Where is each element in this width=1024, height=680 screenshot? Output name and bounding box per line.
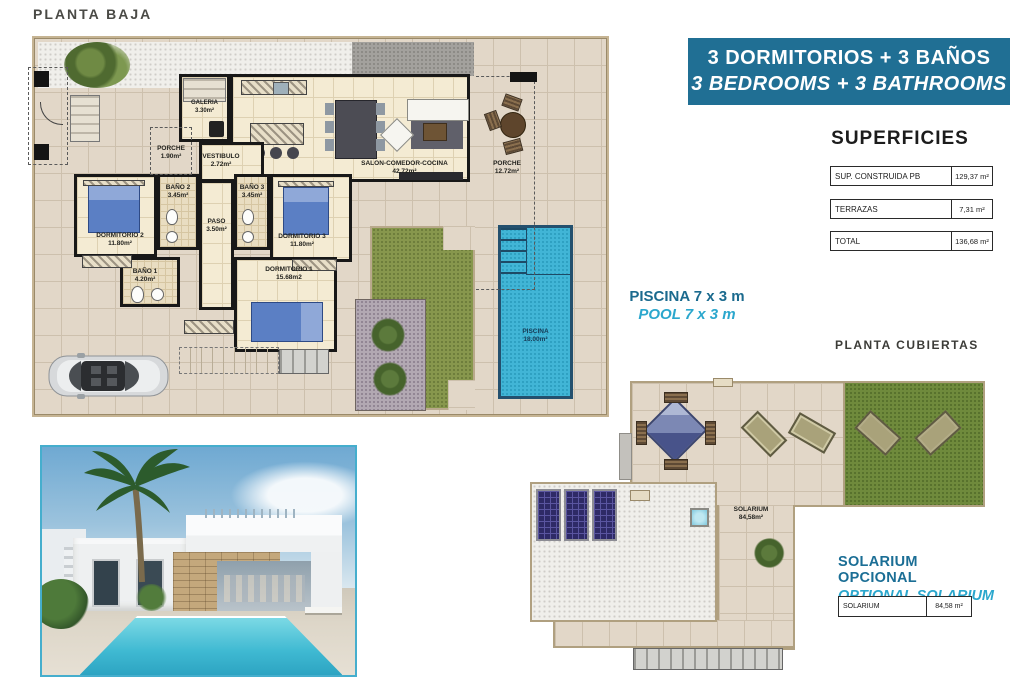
sink-icon [151, 288, 164, 301]
banner-line2: 3 BEDROOMS + 3 BATHROOMS [688, 73, 1010, 96]
superficies-row-value: 136,68 m² [951, 232, 992, 250]
chair-icon [376, 103, 385, 115]
room-label-bano2: BAÑO 23.45m² [154, 184, 202, 200]
skylight-glass [692, 510, 707, 525]
superficies-row-label: TERRAZAS [831, 205, 951, 214]
superficies-row: TERRAZAS 7,31 m² [830, 199, 993, 219]
room-label-vestibulo: VESTIBULO2.72m² [192, 153, 250, 169]
bed-icon [283, 187, 329, 235]
palm-icon [366, 318, 410, 352]
washer-icon [209, 121, 224, 137]
roof-terrace-bottom [553, 620, 795, 648]
pergola-deck [179, 347, 279, 374]
sink-icon [166, 231, 178, 243]
gravel-planter [355, 299, 426, 411]
solar-panel-icon [592, 489, 617, 541]
lawn-notch [443, 226, 475, 250]
wardrobe [82, 255, 132, 268]
chair-icon [325, 121, 334, 133]
garden-steps [279, 349, 329, 374]
entrance-pillar [34, 144, 49, 160]
roof-vent [630, 490, 650, 501]
coffee-table [423, 123, 447, 141]
pool-note-es: PISCINA 7 x 3 m [612, 288, 762, 305]
photo-palm-icon [80, 447, 200, 587]
flyer-page: PLANTA BAJA PISCINA 18.00m² [0, 0, 1024, 680]
palm-icon [368, 362, 412, 396]
toilet-icon [242, 209, 254, 225]
superficies-row-value: 129,37 m² [951, 167, 992, 185]
solarium-note-es: SOLARIUM OPCIONAL [838, 554, 998, 586]
room-label-piscina: PISCINA 18.00m² [501, 328, 570, 344]
photo-pillar-wall [311, 552, 342, 611]
room-label-salon: SALON-COMEDOR-COCINA42.72m² [342, 160, 467, 176]
toilet-icon [131, 286, 144, 303]
chair-icon [376, 139, 385, 151]
tree-icon [64, 42, 130, 88]
bed-icon [251, 302, 323, 342]
bed-icon [88, 185, 140, 233]
porche-outline [476, 76, 535, 290]
sofa-icon [407, 99, 469, 121]
galeria-stairs [183, 78, 226, 102]
room-label-dormitorio2: DORMITORIO 211.80m² [87, 232, 153, 248]
superficies-row: SUP. CONSTRUIDA PB 129,37 m² [830, 166, 993, 186]
room-label-galeria: GALERIA3.30m² [179, 100, 230, 115]
superficies-title: SUPERFICIES [810, 128, 990, 150]
wardrobe [184, 320, 234, 334]
entrance-pillar [34, 71, 49, 87]
roof-bench [664, 459, 688, 470]
entrance-steps [70, 95, 100, 142]
pool-note-en: POOL 7 x 3 m [612, 306, 762, 323]
superficies-row-label: TOTAL [831, 237, 951, 246]
room-label-bano1: BAÑO 14.20m² [121, 268, 169, 284]
banner: 3 DORMITORIOS + 3 BAÑOS 3 BEDROOMS + 3 B… [688, 38, 1010, 105]
solar-panel-icon [536, 489, 561, 541]
room-label-porche: PORCHE12.72m² [480, 160, 534, 176]
banner-line1: 3 DORMITORIOS + 3 BAÑOS [688, 47, 1010, 70]
photo-porch-furniture [224, 575, 305, 602]
roof-bench [664, 392, 688, 403]
sink-icon [242, 231, 254, 243]
solarium-label: SOLARIUM 84,58m² [722, 506, 780, 522]
photo-roof-railing [205, 509, 299, 518]
roof-vent [713, 378, 733, 387]
chair-icon [325, 103, 334, 115]
car-icon [47, 352, 170, 400]
photo-lounger [305, 607, 343, 614]
room-label-dormitorio1: DORMITORIO 115.68m2 [255, 266, 323, 282]
roof-stairs [633, 648, 783, 670]
porch-wall-stub [510, 72, 537, 82]
room-label-paso: PASO3.50m² [198, 218, 235, 234]
chair-icon [325, 139, 334, 151]
room-label-porche-small: PORCHE1.90m² [145, 145, 197, 161]
toilet-icon [166, 209, 178, 225]
roof-gravel-block [530, 482, 717, 622]
solar-panel-icon [564, 489, 589, 541]
room-label-bano3: BAÑO 33.45m² [229, 184, 275, 200]
roof-edge [619, 433, 632, 480]
photo-upper-volume [186, 515, 343, 551]
room-label-dormitorio3: DORMITORIO 311.80m² [269, 233, 335, 249]
planta-cubiertas-title: PLANTA CUBIERTAS [835, 338, 995, 352]
roof-grass [843, 383, 983, 505]
concrete-strip [352, 42, 474, 76]
planta-baja-title: PLANTA BAJA [33, 6, 152, 22]
roof-plant-icon [753, 538, 789, 568]
lawn-notch [448, 380, 475, 410]
villa-photo [40, 445, 357, 677]
solarium-table: SOLARIUM 84,58 m² [838, 596, 972, 617]
superficies-row-value: 7,31 m² [951, 200, 992, 218]
solarium-table-label: SOLARIUM [839, 603, 926, 610]
roof-bench [705, 421, 716, 445]
skylight [690, 508, 709, 527]
headboard [278, 181, 334, 187]
stool-icon [270, 147, 282, 159]
roof-bench [636, 421, 647, 445]
sink-icon [273, 82, 289, 95]
superficies-row-label: SUP. CONSTRUIDA PB [831, 172, 951, 181]
headboard [83, 180, 145, 186]
dining-table [335, 100, 377, 159]
patio-table-icon [500, 112, 526, 138]
superficies-row: TOTAL 136,68 m² [830, 231, 993, 251]
solarium-table-value: 84,58 m² [926, 597, 971, 616]
floor-plan-panel: PISCINA 18.00m² [32, 36, 609, 417]
stool-icon [287, 147, 299, 159]
armchair-icon [380, 118, 414, 152]
